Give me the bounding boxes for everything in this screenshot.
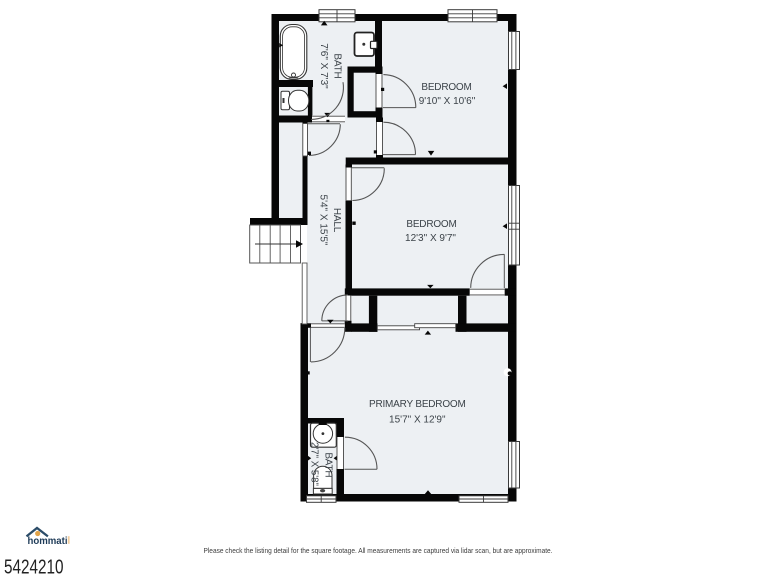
- svg-text:PRIMARY BEDROOM: PRIMARY BEDROOM: [369, 399, 466, 410]
- svg-text:5424210: 5424210: [4, 556, 64, 576]
- svg-text:Please check the listing detai: Please check the listing detail for the …: [204, 546, 553, 555]
- svg-text:BATH: BATH: [322, 452, 333, 477]
- svg-text:BEDROOM: BEDROOM: [406, 219, 456, 230]
- svg-text:2'7" X 5'8": 2'7" X 5'8": [309, 442, 320, 487]
- svg-text:9'10" X 10'6": 9'10" X 10'6": [419, 96, 476, 107]
- svg-text:hommati: hommati: [28, 536, 68, 547]
- svg-text:7'6" X 7'3": 7'6" X 7'3": [318, 43, 329, 89]
- svg-text:12'3" X 9'7": 12'3" X 9'7": [405, 233, 456, 244]
- svg-text:5'4" X 15'5": 5'4" X 15'5": [318, 195, 329, 246]
- svg-text:15'7" X 12'9": 15'7" X 12'9": [389, 415, 446, 426]
- svg-text:HALL: HALL: [331, 208, 342, 233]
- svg-text:BATH: BATH: [332, 53, 343, 78]
- svg-text:BEDROOM: BEDROOM: [421, 82, 471, 93]
